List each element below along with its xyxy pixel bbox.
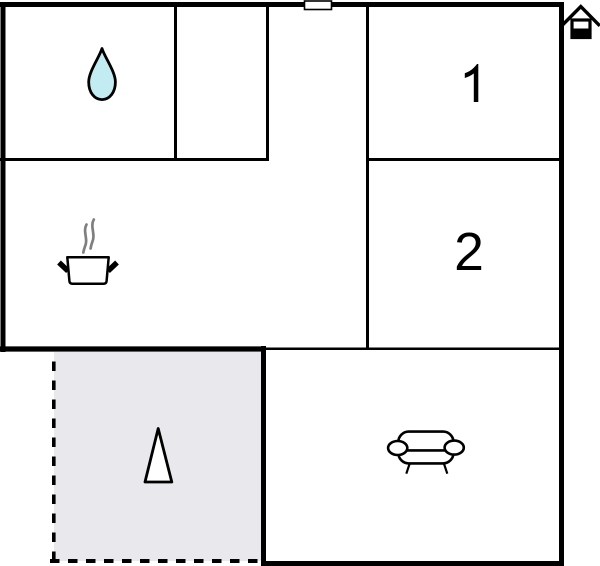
svg-text:2: 2 xyxy=(454,223,484,282)
